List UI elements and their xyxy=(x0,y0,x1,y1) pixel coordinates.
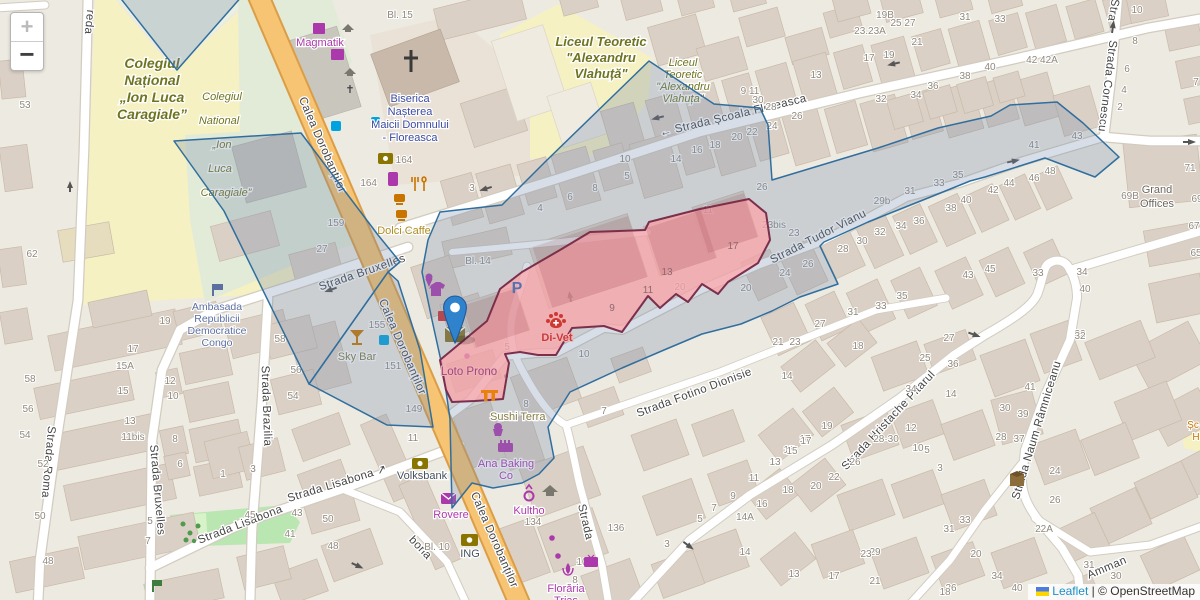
svg-text:Liceul: Liceul xyxy=(669,57,698,69)
svg-text:25: 25 xyxy=(919,353,931,364)
svg-text:3: 3 xyxy=(250,464,256,475)
svg-text:14: 14 xyxy=(945,389,957,400)
svg-text:27: 27 xyxy=(943,333,955,344)
svg-text:14: 14 xyxy=(781,371,793,382)
svg-text:6: 6 xyxy=(1124,64,1130,75)
svg-text:5: 5 xyxy=(697,514,703,525)
svg-text:42: 42 xyxy=(987,185,999,196)
svg-text:Nașterea: Nașterea xyxy=(388,106,434,118)
svg-text:36: 36 xyxy=(947,359,959,370)
svg-text:Liceul Teoretic: Liceul Teoretic xyxy=(555,34,647,49)
svg-text:3: 3 xyxy=(664,539,670,550)
svg-text:41: 41 xyxy=(1024,382,1036,393)
svg-text:40: 40 xyxy=(984,62,996,73)
svg-text:53: 53 xyxy=(19,100,31,111)
svg-text:„Ion Luca: „Ion Luca xyxy=(119,89,185,105)
svg-text:33: 33 xyxy=(1032,268,1044,279)
svg-text:19: 19 xyxy=(821,421,833,432)
svg-text:10: 10 xyxy=(912,443,924,454)
svg-text:9: 9 xyxy=(730,491,736,502)
svg-text:136: 136 xyxy=(608,523,625,534)
svg-text:13: 13 xyxy=(661,267,673,278)
svg-text:"Alexandru: "Alexandru xyxy=(566,50,636,65)
svg-text:13: 13 xyxy=(788,569,800,580)
svg-text:Biserica: Biserica xyxy=(390,93,430,105)
svg-text:11bis: 11bis xyxy=(121,432,144,443)
svg-text:3: 3 xyxy=(937,463,943,474)
svg-text:34: 34 xyxy=(895,221,907,232)
svg-text:Maicii Domnului: Maicii Domnului xyxy=(371,119,449,131)
svg-text:32: 32 xyxy=(1074,331,1086,342)
svg-text:34: 34 xyxy=(905,384,917,395)
svg-text:Florăria: Florăria xyxy=(547,583,585,595)
svg-text:32: 32 xyxy=(875,94,887,105)
svg-text:3: 3 xyxy=(469,183,475,194)
svg-text:8: 8 xyxy=(1132,36,1138,47)
svg-text:28: 28 xyxy=(765,102,777,113)
svg-text:13: 13 xyxy=(769,457,781,468)
svg-text:15: 15 xyxy=(117,386,129,397)
svg-text:Trias: Trias xyxy=(554,595,579,600)
svg-text:30: 30 xyxy=(999,403,1011,414)
svg-text:Caragiale”: Caragiale” xyxy=(117,106,187,122)
svg-text:11: 11 xyxy=(643,285,654,296)
svg-text:45: 45 xyxy=(984,264,996,275)
svg-text:7: 7 xyxy=(711,503,717,514)
svg-text:45: 45 xyxy=(244,510,256,521)
svg-text:- Floreasca: - Floreasca xyxy=(382,132,438,144)
svg-text:17: 17 xyxy=(828,571,840,582)
svg-text:41: 41 xyxy=(284,529,296,540)
svg-text:2: 2 xyxy=(1117,102,1123,113)
svg-text:18: 18 xyxy=(939,587,951,598)
svg-text:54: 54 xyxy=(19,430,31,441)
svg-text:22A: 22A xyxy=(1035,524,1053,535)
svg-text:62: 62 xyxy=(26,249,38,260)
svg-text:Kultho: Kultho xyxy=(513,505,544,517)
svg-text:19: 19 xyxy=(883,50,895,61)
svg-text:12: 12 xyxy=(905,423,917,434)
svg-text:34: 34 xyxy=(991,571,1003,582)
svg-text:43: 43 xyxy=(291,508,303,519)
svg-text:Democratice: Democratice xyxy=(188,325,247,337)
svg-text:28: 28 xyxy=(837,244,849,255)
svg-text:58: 58 xyxy=(274,334,286,345)
svg-text:22: 22 xyxy=(828,472,840,483)
svg-text:36: 36 xyxy=(913,216,925,227)
svg-text:Offices: Offices xyxy=(1140,198,1175,210)
svg-text:Colegiul: Colegiul xyxy=(202,91,242,103)
svg-text:14A: 14A xyxy=(736,512,754,523)
svg-text:23: 23 xyxy=(860,549,872,560)
svg-text:23: 23 xyxy=(789,337,801,348)
svg-text:31: 31 xyxy=(847,307,859,318)
svg-text:5: 5 xyxy=(924,445,930,456)
svg-text:25 27: 25 27 xyxy=(890,18,915,29)
svg-text:31: 31 xyxy=(943,524,955,535)
svg-text:Național: Național xyxy=(124,72,180,88)
svg-text:43: 43 xyxy=(962,270,974,281)
svg-text:P: P xyxy=(512,280,523,297)
svg-text:11: 11 xyxy=(408,433,419,444)
svg-text:H: H xyxy=(1192,432,1199,443)
svg-text:42 42A: 42 42A xyxy=(1026,55,1058,66)
svg-text:20: 20 xyxy=(970,549,982,560)
svg-text:26: 26 xyxy=(1049,495,1061,506)
svg-text:Sushi Terra: Sushi Terra xyxy=(490,411,546,423)
svg-text:Loto Prono: Loto Prono xyxy=(441,366,497,378)
svg-text:33: 33 xyxy=(959,515,971,526)
svg-text:11: 11 xyxy=(749,473,760,484)
svg-text:18: 18 xyxy=(782,485,794,496)
svg-text:6: 6 xyxy=(177,459,183,470)
svg-text:30: 30 xyxy=(856,236,868,247)
svg-text:30: 30 xyxy=(1110,571,1122,582)
svg-text:17: 17 xyxy=(127,344,139,355)
svg-text:7: 7 xyxy=(1193,77,1199,88)
svg-text:Republicii: Republicii xyxy=(194,313,240,325)
svg-text:26: 26 xyxy=(791,111,803,122)
svg-text:164: 164 xyxy=(360,178,377,189)
svg-text:17: 17 xyxy=(727,241,739,252)
svg-text:54: 54 xyxy=(287,391,299,402)
svg-text:Congo: Congo xyxy=(202,337,233,349)
svg-text:34: 34 xyxy=(910,90,922,101)
svg-text:17: 17 xyxy=(800,436,812,447)
svg-text:56: 56 xyxy=(22,404,34,415)
svg-text:Vlahuță": Vlahuță" xyxy=(574,66,628,81)
svg-text:40: 40 xyxy=(960,195,972,206)
svg-text:5: 5 xyxy=(147,516,153,527)
svg-text:65: 65 xyxy=(1190,248,1200,259)
svg-text:10: 10 xyxy=(167,391,179,402)
svg-text:Dolci Caffe: Dolci Caffe xyxy=(377,225,431,237)
svg-text:24: 24 xyxy=(1049,466,1061,477)
svg-text:164: 164 xyxy=(396,155,413,166)
svg-text:69B: 69B xyxy=(1121,191,1139,202)
svg-text:16: 16 xyxy=(756,499,768,510)
svg-text:4: 4 xyxy=(1121,85,1127,96)
svg-text:40: 40 xyxy=(1011,583,1023,594)
svg-text:12: 12 xyxy=(164,376,176,387)
svg-text:ING: ING xyxy=(460,548,480,560)
svg-text:28: 28 xyxy=(995,432,1007,443)
svg-text:33: 33 xyxy=(875,301,887,312)
svg-text:38: 38 xyxy=(945,203,957,214)
svg-text:8: 8 xyxy=(172,434,178,445)
svg-text:19: 19 xyxy=(159,316,171,327)
svg-text:reda: reda xyxy=(82,9,96,35)
svg-text:32: 32 xyxy=(874,227,886,238)
svg-text:30: 30 xyxy=(752,95,764,106)
svg-text:13: 13 xyxy=(810,70,822,81)
svg-text:18: 18 xyxy=(852,341,864,352)
svg-text:Bl. 15: Bl. 15 xyxy=(387,10,413,21)
svg-text:21: 21 xyxy=(869,576,881,587)
svg-text:National: National xyxy=(199,115,240,127)
svg-text:9: 9 xyxy=(609,303,615,314)
svg-text:7: 7 xyxy=(601,406,607,417)
svg-text:50: 50 xyxy=(34,511,46,522)
svg-text:21: 21 xyxy=(911,37,923,48)
svg-text:Volksbank: Volksbank xyxy=(397,470,448,482)
svg-text:36: 36 xyxy=(927,81,939,92)
svg-text:134: 134 xyxy=(525,517,542,528)
svg-text:50: 50 xyxy=(322,514,334,525)
svg-text:39: 39 xyxy=(1017,409,1029,420)
svg-text:37: 37 xyxy=(1013,434,1025,445)
svg-text:Rovere: Rovere xyxy=(433,509,468,521)
svg-text:31: 31 xyxy=(1083,560,1095,571)
svg-text:67: 67 xyxy=(1188,221,1200,232)
svg-text:35: 35 xyxy=(896,291,908,302)
svg-text:Grand: Grand xyxy=(1142,184,1173,196)
svg-text:46: 46 xyxy=(1028,173,1040,184)
svg-text:27: 27 xyxy=(814,319,826,330)
svg-text:31: 31 xyxy=(959,12,971,23)
svg-text:10: 10 xyxy=(1131,5,1143,16)
svg-text:Magmatik: Magmatik xyxy=(296,37,344,49)
svg-text:38: 38 xyxy=(959,71,971,82)
svg-text:✝: ✝ xyxy=(345,84,354,96)
svg-text:26: 26 xyxy=(849,457,861,468)
svg-text:34: 34 xyxy=(1076,267,1088,278)
svg-text:44: 44 xyxy=(1003,178,1015,189)
svg-text:40: 40 xyxy=(1079,284,1091,295)
svg-text:Ambasada: Ambasada xyxy=(192,301,242,313)
svg-text:17: 17 xyxy=(863,53,875,64)
svg-text:33: 33 xyxy=(994,14,1006,25)
svg-text:Șc: Șc xyxy=(1187,420,1199,431)
svg-text:58: 58 xyxy=(24,374,36,385)
svg-text:Bl. 10: Bl. 10 xyxy=(424,542,450,553)
svg-text:69: 69 xyxy=(1191,194,1200,205)
svg-text:48: 48 xyxy=(42,556,54,567)
svg-text:14: 14 xyxy=(739,547,751,558)
svg-text:20: 20 xyxy=(810,481,822,492)
svg-text:13: 13 xyxy=(124,416,136,427)
svg-text:15: 15 xyxy=(786,446,798,457)
svg-text:28·30: 28·30 xyxy=(873,434,899,445)
svg-text:1: 1 xyxy=(220,469,226,480)
svg-text:Di-Vet: Di-Vet xyxy=(541,332,573,344)
svg-text:15A: 15A xyxy=(116,361,134,372)
svg-text:7: 7 xyxy=(145,536,151,547)
svg-text:52: 52 xyxy=(37,459,49,470)
svg-text:48: 48 xyxy=(327,541,339,552)
svg-text:48: 48 xyxy=(1044,166,1056,177)
svg-text:23.23A: 23.23A xyxy=(854,26,886,37)
svg-text:21: 21 xyxy=(772,337,784,348)
svg-text:71: 71 xyxy=(1184,163,1196,174)
